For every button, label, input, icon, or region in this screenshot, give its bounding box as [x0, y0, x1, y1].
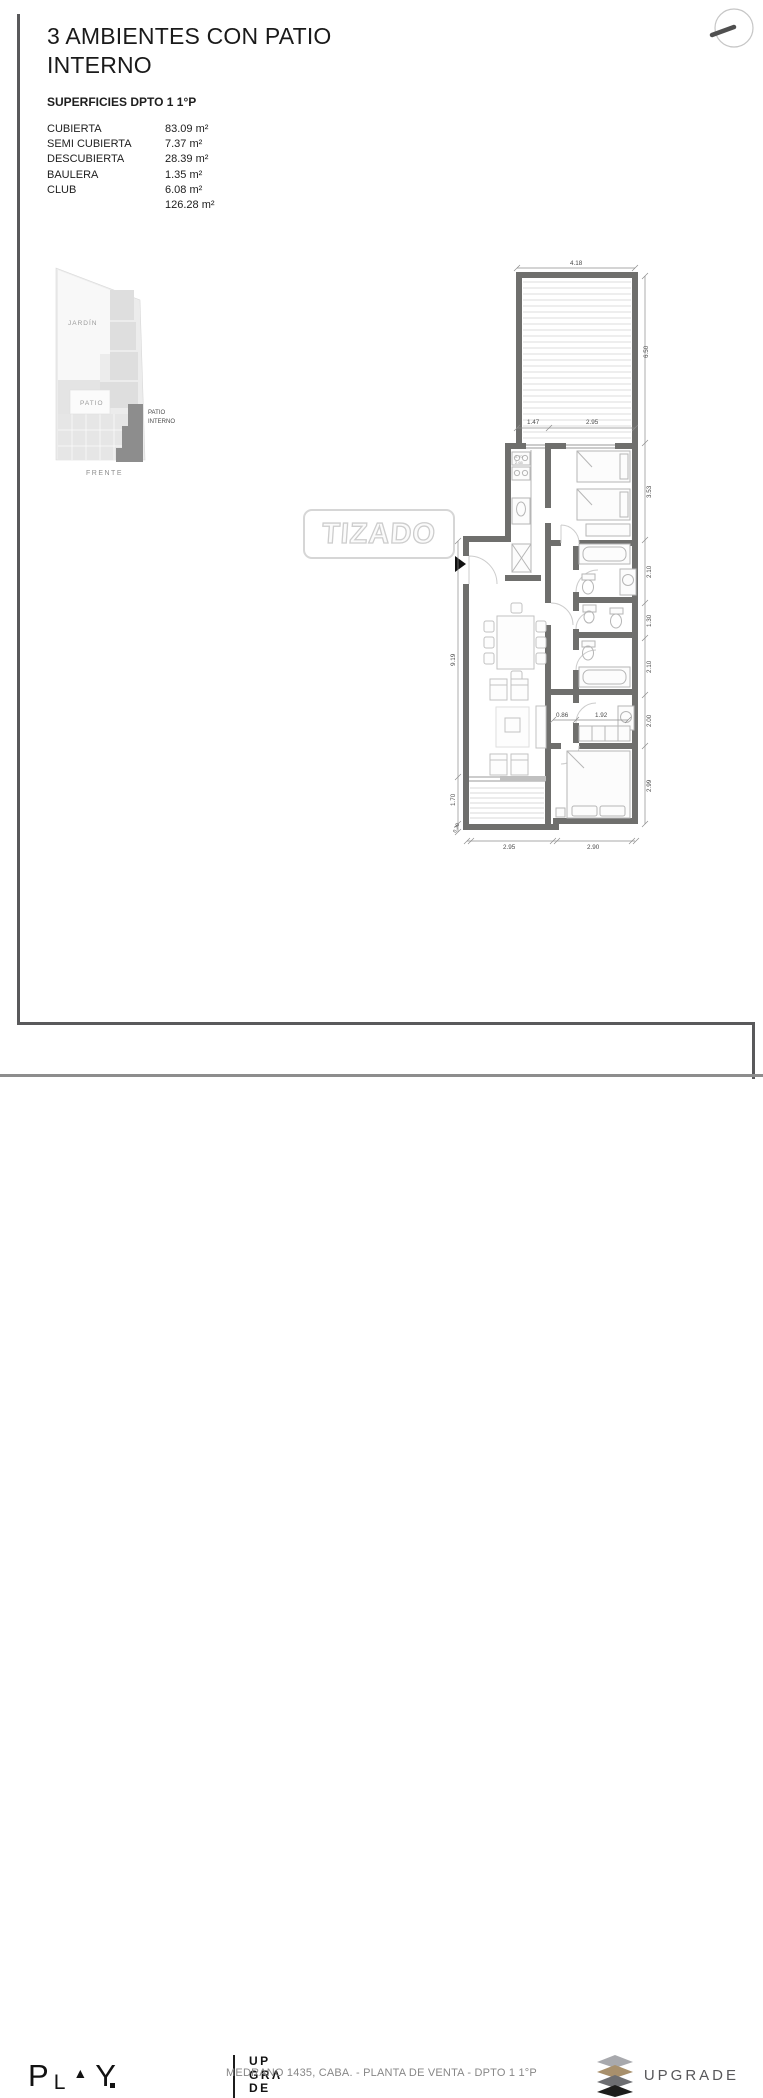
patio-interno-label-2: INTERNO	[148, 419, 175, 425]
dim-kitchen-1: 0.70	[515, 454, 524, 459]
bathroom2-fixtures	[579, 641, 630, 687]
dim-terrace-b1: 1.47	[527, 419, 540, 426]
dim-bottom-2: 2.90	[587, 844, 600, 851]
surface-value: 6.08 m²	[165, 184, 202, 196]
dim-kitchen-2: 2.65	[515, 460, 524, 465]
dim-left-1: 9.19	[450, 653, 457, 666]
page-title-line1: 3 AMBIENTES CON PATIO	[47, 22, 332, 51]
toilette-fixtures	[583, 605, 623, 628]
upgrade-label: UPGRADE	[644, 2067, 739, 2084]
dim-right-1: 3.53	[646, 485, 653, 498]
footer-bar: PL▲Y UP GRΛ DE MEDRANO 1435, CABA. - PLA…	[0, 1024, 763, 1076]
sliding-door	[500, 776, 546, 781]
kitchen-fixtures	[512, 450, 531, 573]
page-title: 3 AMBIENTES CON PATIO INTERNO	[47, 22, 332, 80]
jardin-label: JARDÍN	[68, 318, 97, 327]
surface-value: 7.37 m²	[165, 138, 202, 150]
table-row: DESCUBIERTA28.39 m²	[47, 152, 215, 167]
site-diagram: JARDÍN PATIO PATIO INTERNO FRENTE	[48, 262, 218, 486]
dim-right-4: 2.10	[646, 660, 653, 673]
north-indicator-icon	[703, 2, 761, 54]
surface-value: 1.35 m²	[165, 169, 202, 181]
terrace-decking	[523, 282, 631, 438]
living-set	[490, 679, 546, 775]
surface-value: 28.39 m²	[165, 153, 208, 165]
dim-right-5: 2.00	[646, 714, 653, 727]
patio-interno-label-1: PATIO	[148, 410, 165, 416]
table-row: SEMI CUBIERTA7.37 m²	[47, 137, 215, 152]
dim-right-6: 2.99	[646, 779, 653, 792]
table-row-total: 126.28 m²	[47, 198, 215, 213]
dim-left-3: 0.30	[452, 822, 461, 833]
watermark: TIZADO	[303, 509, 455, 559]
dim-mid-2: 1.92	[595, 712, 608, 719]
surface-label: BAULERA	[47, 168, 165, 183]
surface-label: SEMI CUBIERTA	[47, 137, 165, 152]
table-row: CLUB6.08 m²	[47, 183, 215, 198]
dining-set	[484, 603, 546, 681]
dim-left-2: 1.70	[450, 793, 457, 806]
table-row: BAULERA1.35 m²	[47, 168, 215, 183]
dim-right-2: 2.10	[646, 565, 653, 578]
bedroom1-furniture	[577, 451, 630, 536]
balcony-decking	[470, 788, 544, 818]
upgrade-logo: UPGRADE	[594, 2053, 739, 2097]
surface-label: DESCUBIERTA	[47, 152, 165, 167]
page-title-line2: INTERNO	[47, 51, 332, 80]
dim-terrace-height: 6.50	[643, 345, 650, 358]
dim-right-3: 1.30	[646, 614, 653, 627]
bathroom1-fixtures	[579, 544, 636, 595]
dim-terrace-width: 4.18	[570, 260, 583, 267]
upgrade-chevrons-icon	[594, 2053, 636, 2097]
table-row: CUBIERTA83.09 m²	[47, 122, 215, 137]
play-logo-dot	[110, 2083, 115, 2088]
dim-mid-1: 0.86	[556, 712, 569, 719]
surfaces-table: CUBIERTA83.09 m² SEMI CUBIERTA7.37 m² DE…	[47, 122, 215, 213]
floor-plan: 4.18 6.50 1.47 2.95 3.53 2.10 1.30 2.10 …	[440, 250, 720, 860]
surfaces-heading: SUPERFICIES DPTO 1 1°P	[47, 95, 196, 109]
dim-terrace-b2: 2.95	[586, 419, 599, 426]
surface-value: 83.09 m²	[165, 123, 208, 135]
upgrade-stack-line: DE	[249, 2082, 283, 2096]
bedroom2-furniture	[556, 751, 630, 818]
entrance-arrow	[455, 556, 466, 572]
surface-label: CUBIERTA	[47, 122, 165, 137]
surface-total-value: 126.28 m²	[165, 199, 215, 211]
surface-label: CLUB	[47, 183, 165, 198]
patio-label: PATIO	[80, 400, 104, 407]
dim-bottom-1: 2.95	[503, 844, 516, 851]
watermark-text: TIZADO	[321, 518, 437, 551]
frente-label: FRENTE	[86, 470, 123, 477]
content-border-left	[17, 14, 20, 1022]
page-root: { "header": { "title_line1": "3 AMBIENTE…	[0, 0, 763, 1079]
